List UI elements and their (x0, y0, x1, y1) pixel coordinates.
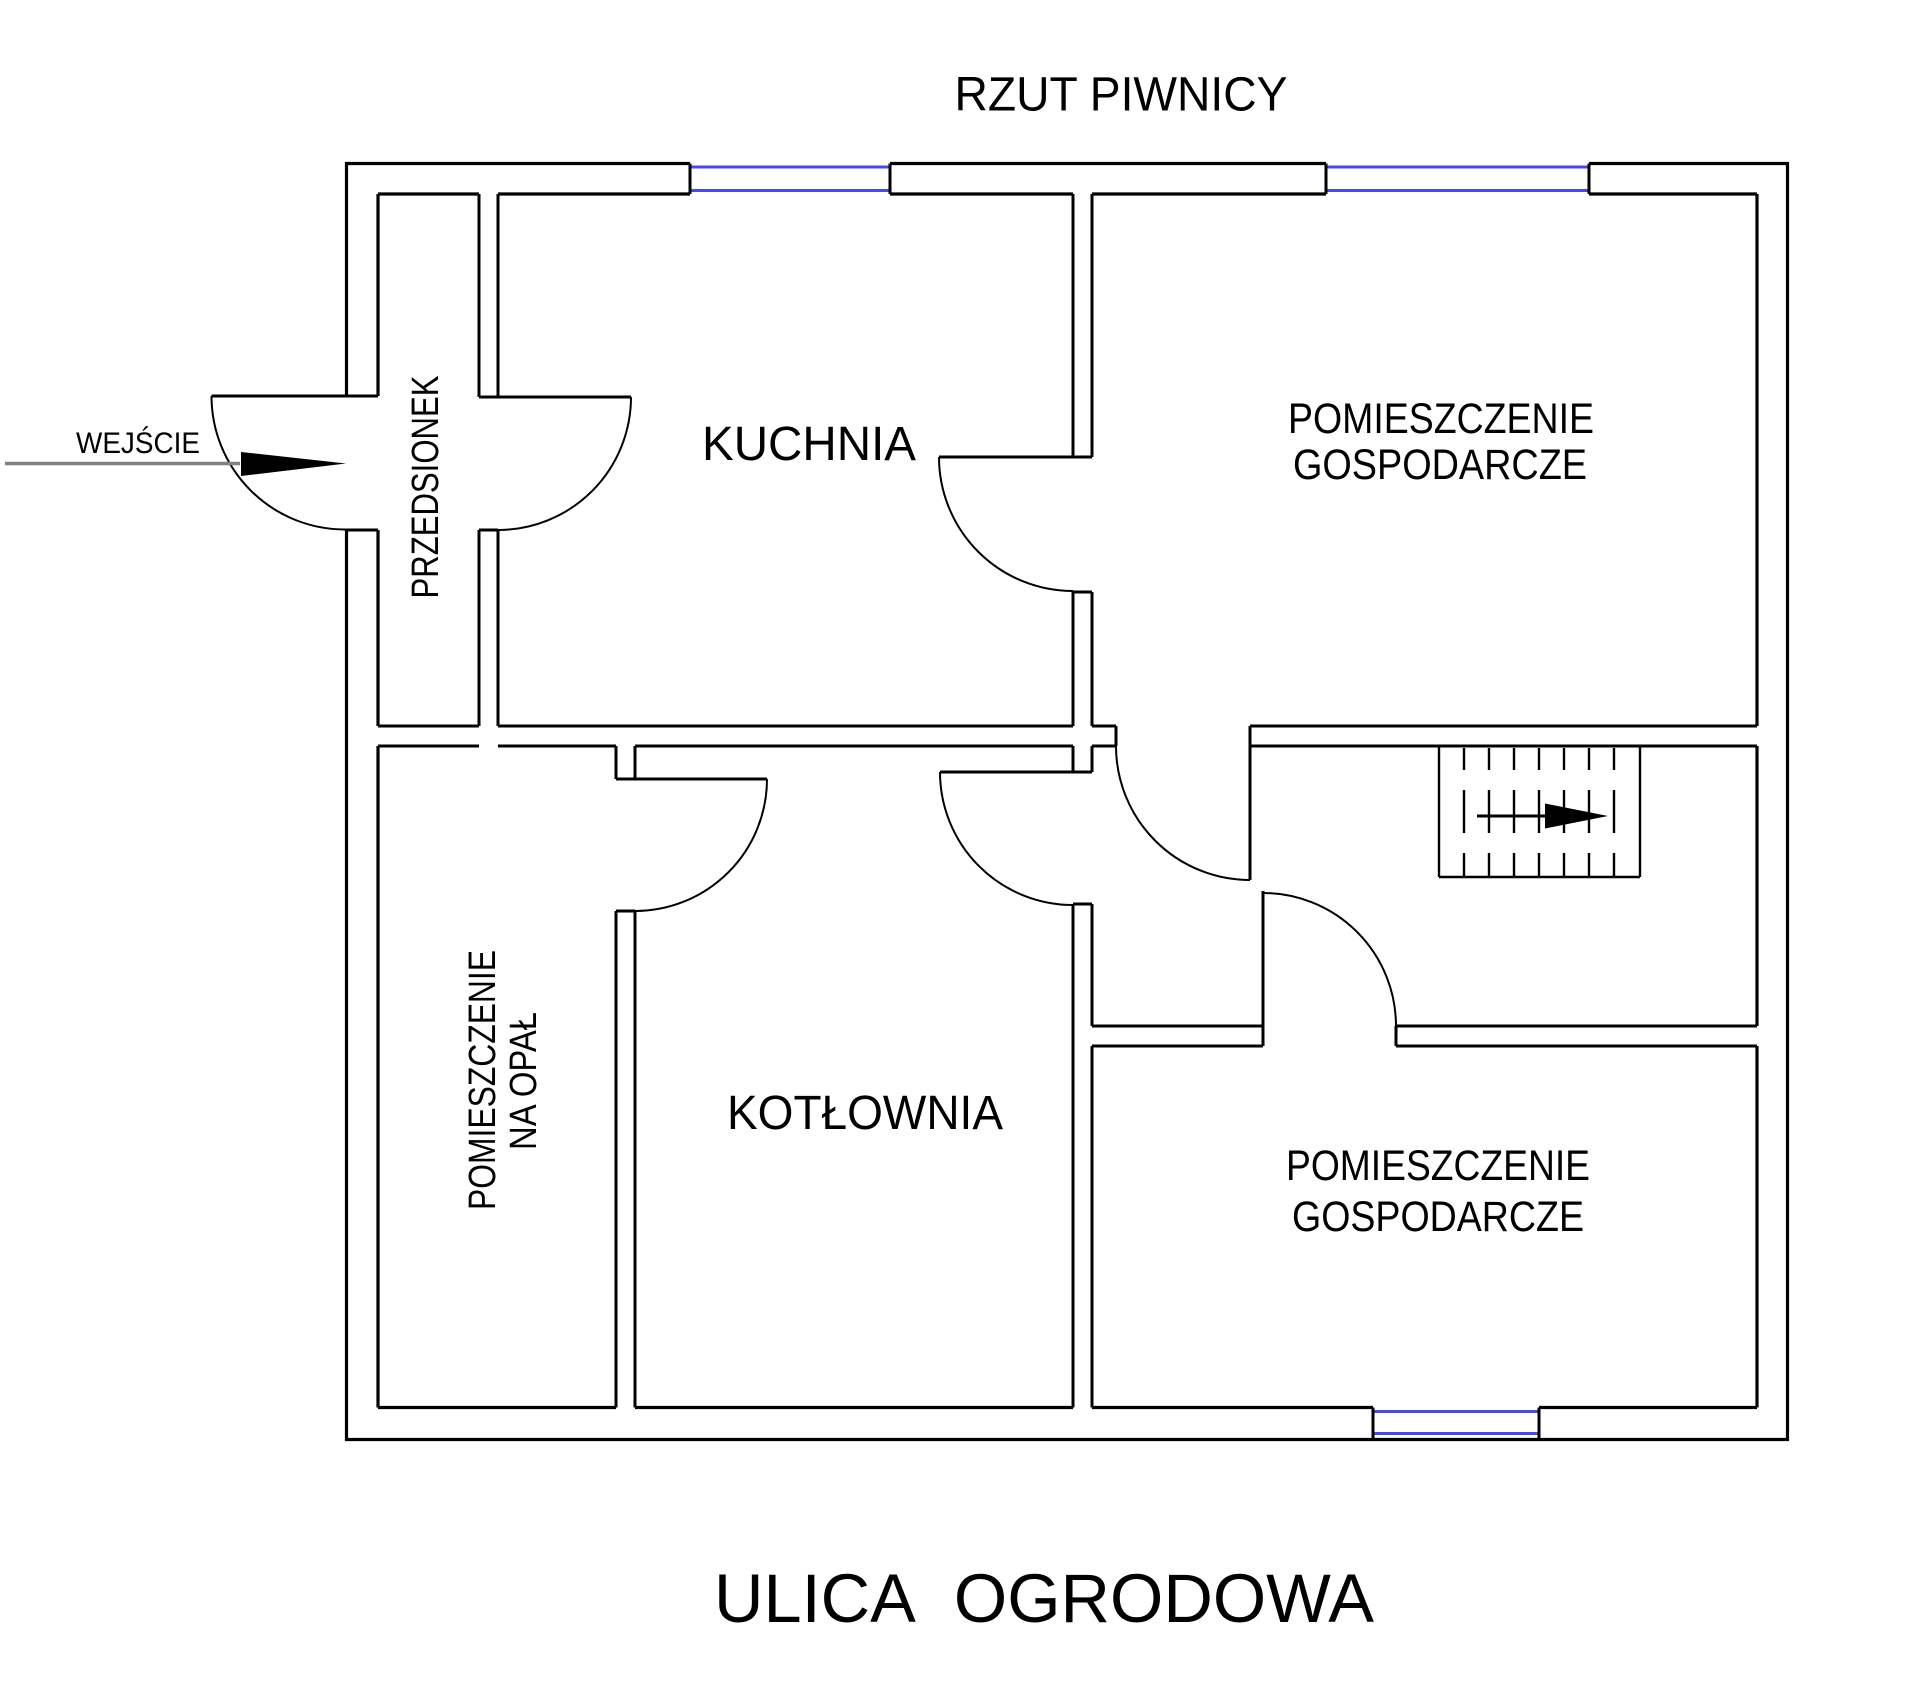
svg-text:ULICA OGRODOWA: ULICA OGRODOWA (714, 1560, 1374, 1637)
svg-text:POMIESZCZENIE: POMIESZCZENIE (1286, 1143, 1590, 1190)
svg-text:KOTŁOWNIA: KOTŁOWNIA (727, 1087, 1003, 1140)
svg-text:GOSPODARCZE: GOSPODARCZE (1293, 442, 1587, 489)
svg-text:POMIESZCZENIE: POMIESZCZENIE (1288, 396, 1594, 443)
svg-text:WEJŚCIE: WEJŚCIE (76, 426, 200, 460)
svg-text:RZUT PIWNICY: RZUT PIWNICY (955, 69, 1288, 122)
svg-text:POMIESZCZENIE: POMIESZCZENIE (462, 950, 504, 1210)
svg-text:PRZEDSIONEK: PRZEDSIONEK (405, 376, 447, 599)
svg-text:NA OPAŁ: NA OPAŁ (503, 1012, 545, 1150)
svg-text:KUCHNIA: KUCHNIA (702, 418, 916, 471)
svg-text:GOSPODARCZE: GOSPODARCZE (1292, 1194, 1584, 1241)
